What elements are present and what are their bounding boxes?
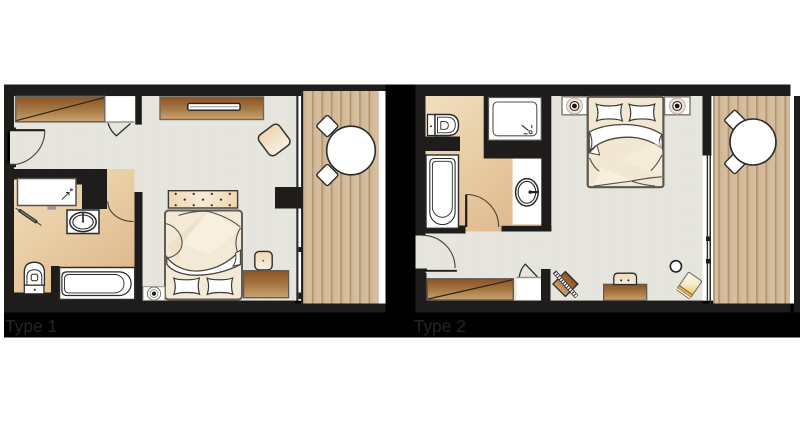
- svg-text:Type 2: Type 2: [414, 316, 466, 336]
- svg-text:Type 1: Type 1: [5, 316, 57, 336]
